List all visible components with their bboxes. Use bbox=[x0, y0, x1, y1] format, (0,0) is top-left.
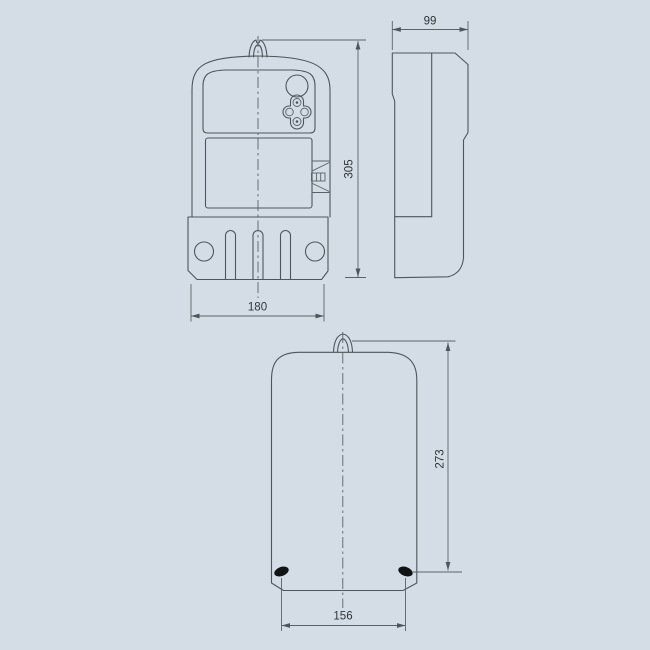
side-cover-edge bbox=[395, 53, 432, 217]
cable-slot bbox=[281, 231, 291, 280]
mounting-hole bbox=[273, 565, 290, 579]
cover-screw-hole bbox=[306, 242, 325, 261]
cover-seal-tab bbox=[312, 161, 330, 193]
dim-label-rear-height: 273 bbox=[435, 449, 447, 468]
mounting-hole bbox=[397, 565, 414, 579]
display-window bbox=[203, 70, 315, 133]
cable-slot bbox=[226, 231, 236, 280]
rear-body-outline bbox=[272, 352, 417, 590]
rear-view: 273 156 bbox=[272, 332, 463, 631]
meter-body-outline bbox=[192, 56, 330, 217]
dim-front-width: 180 bbox=[191, 284, 324, 322]
side-view: 99 bbox=[392, 16, 468, 278]
dim-label-front-height: 305 bbox=[344, 159, 356, 178]
meter-dimension-drawing: 305 180 99 bbox=[0, 0, 650, 650]
dim-label-rear-hole-spacing: 156 bbox=[333, 611, 352, 623]
dim-rear-hole-spacing: 156 bbox=[282, 578, 406, 631]
cover-screw-hole bbox=[195, 242, 214, 261]
dim-side-depth: 99 bbox=[392, 16, 468, 51]
dim-label-front-width: 180 bbox=[248, 302, 267, 314]
seal-cluster bbox=[283, 95, 311, 129]
front-view: 305 180 bbox=[188, 36, 366, 322]
side-profile-outline bbox=[392, 53, 468, 278]
dim-rear-height: 273 bbox=[352, 341, 462, 572]
seal-screw bbox=[286, 75, 308, 97]
nameplate bbox=[206, 138, 313, 208]
dim-label-side-depth: 99 bbox=[424, 16, 437, 28]
